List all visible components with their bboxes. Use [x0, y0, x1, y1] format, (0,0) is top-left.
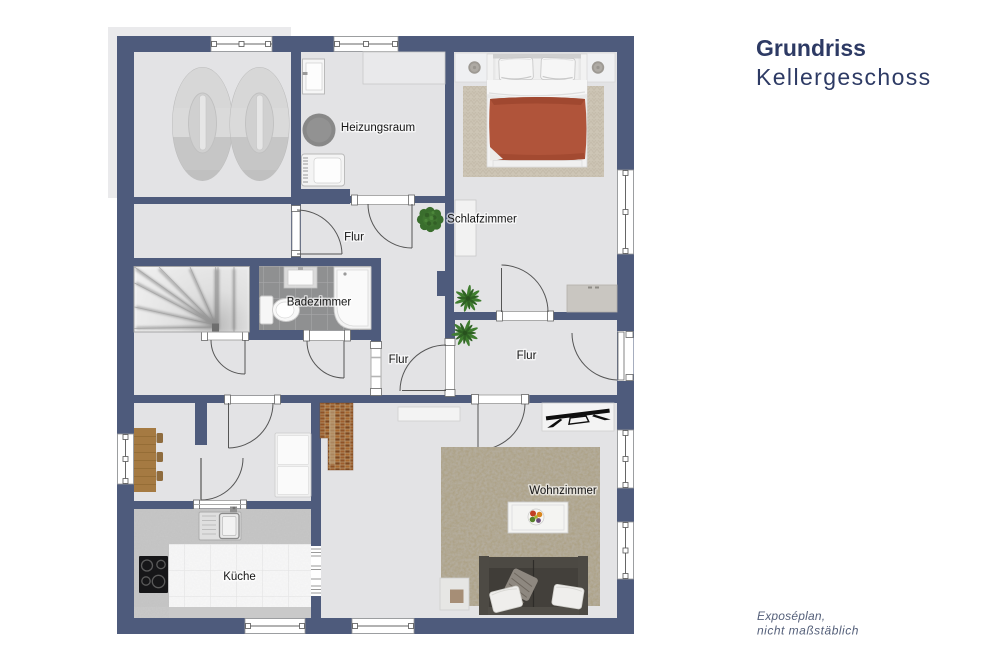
svg-text:Kellergeschoss: Kellergeschoss: [756, 64, 932, 90]
svg-text:nicht maßstäblich: nicht maßstäblich: [757, 624, 859, 638]
svg-text:Flur: Flur: [517, 350, 537, 362]
svg-text:Flur: Flur: [389, 354, 409, 366]
svg-text:Badezimmer: Badezimmer: [287, 297, 352, 309]
svg-text:Wohnzimmer: Wohnzimmer: [529, 485, 597, 497]
svg-text:Heizungsraum: Heizungsraum: [341, 122, 415, 134]
svg-text:Schlafzimmer: Schlafzimmer: [447, 214, 517, 226]
svg-text:Grundriss: Grundriss: [756, 35, 866, 61]
svg-text:Flur: Flur: [344, 232, 364, 244]
svg-text:Küche: Küche: [223, 571, 256, 583]
svg-text:Exposéplan,: Exposéplan,: [757, 609, 825, 623]
